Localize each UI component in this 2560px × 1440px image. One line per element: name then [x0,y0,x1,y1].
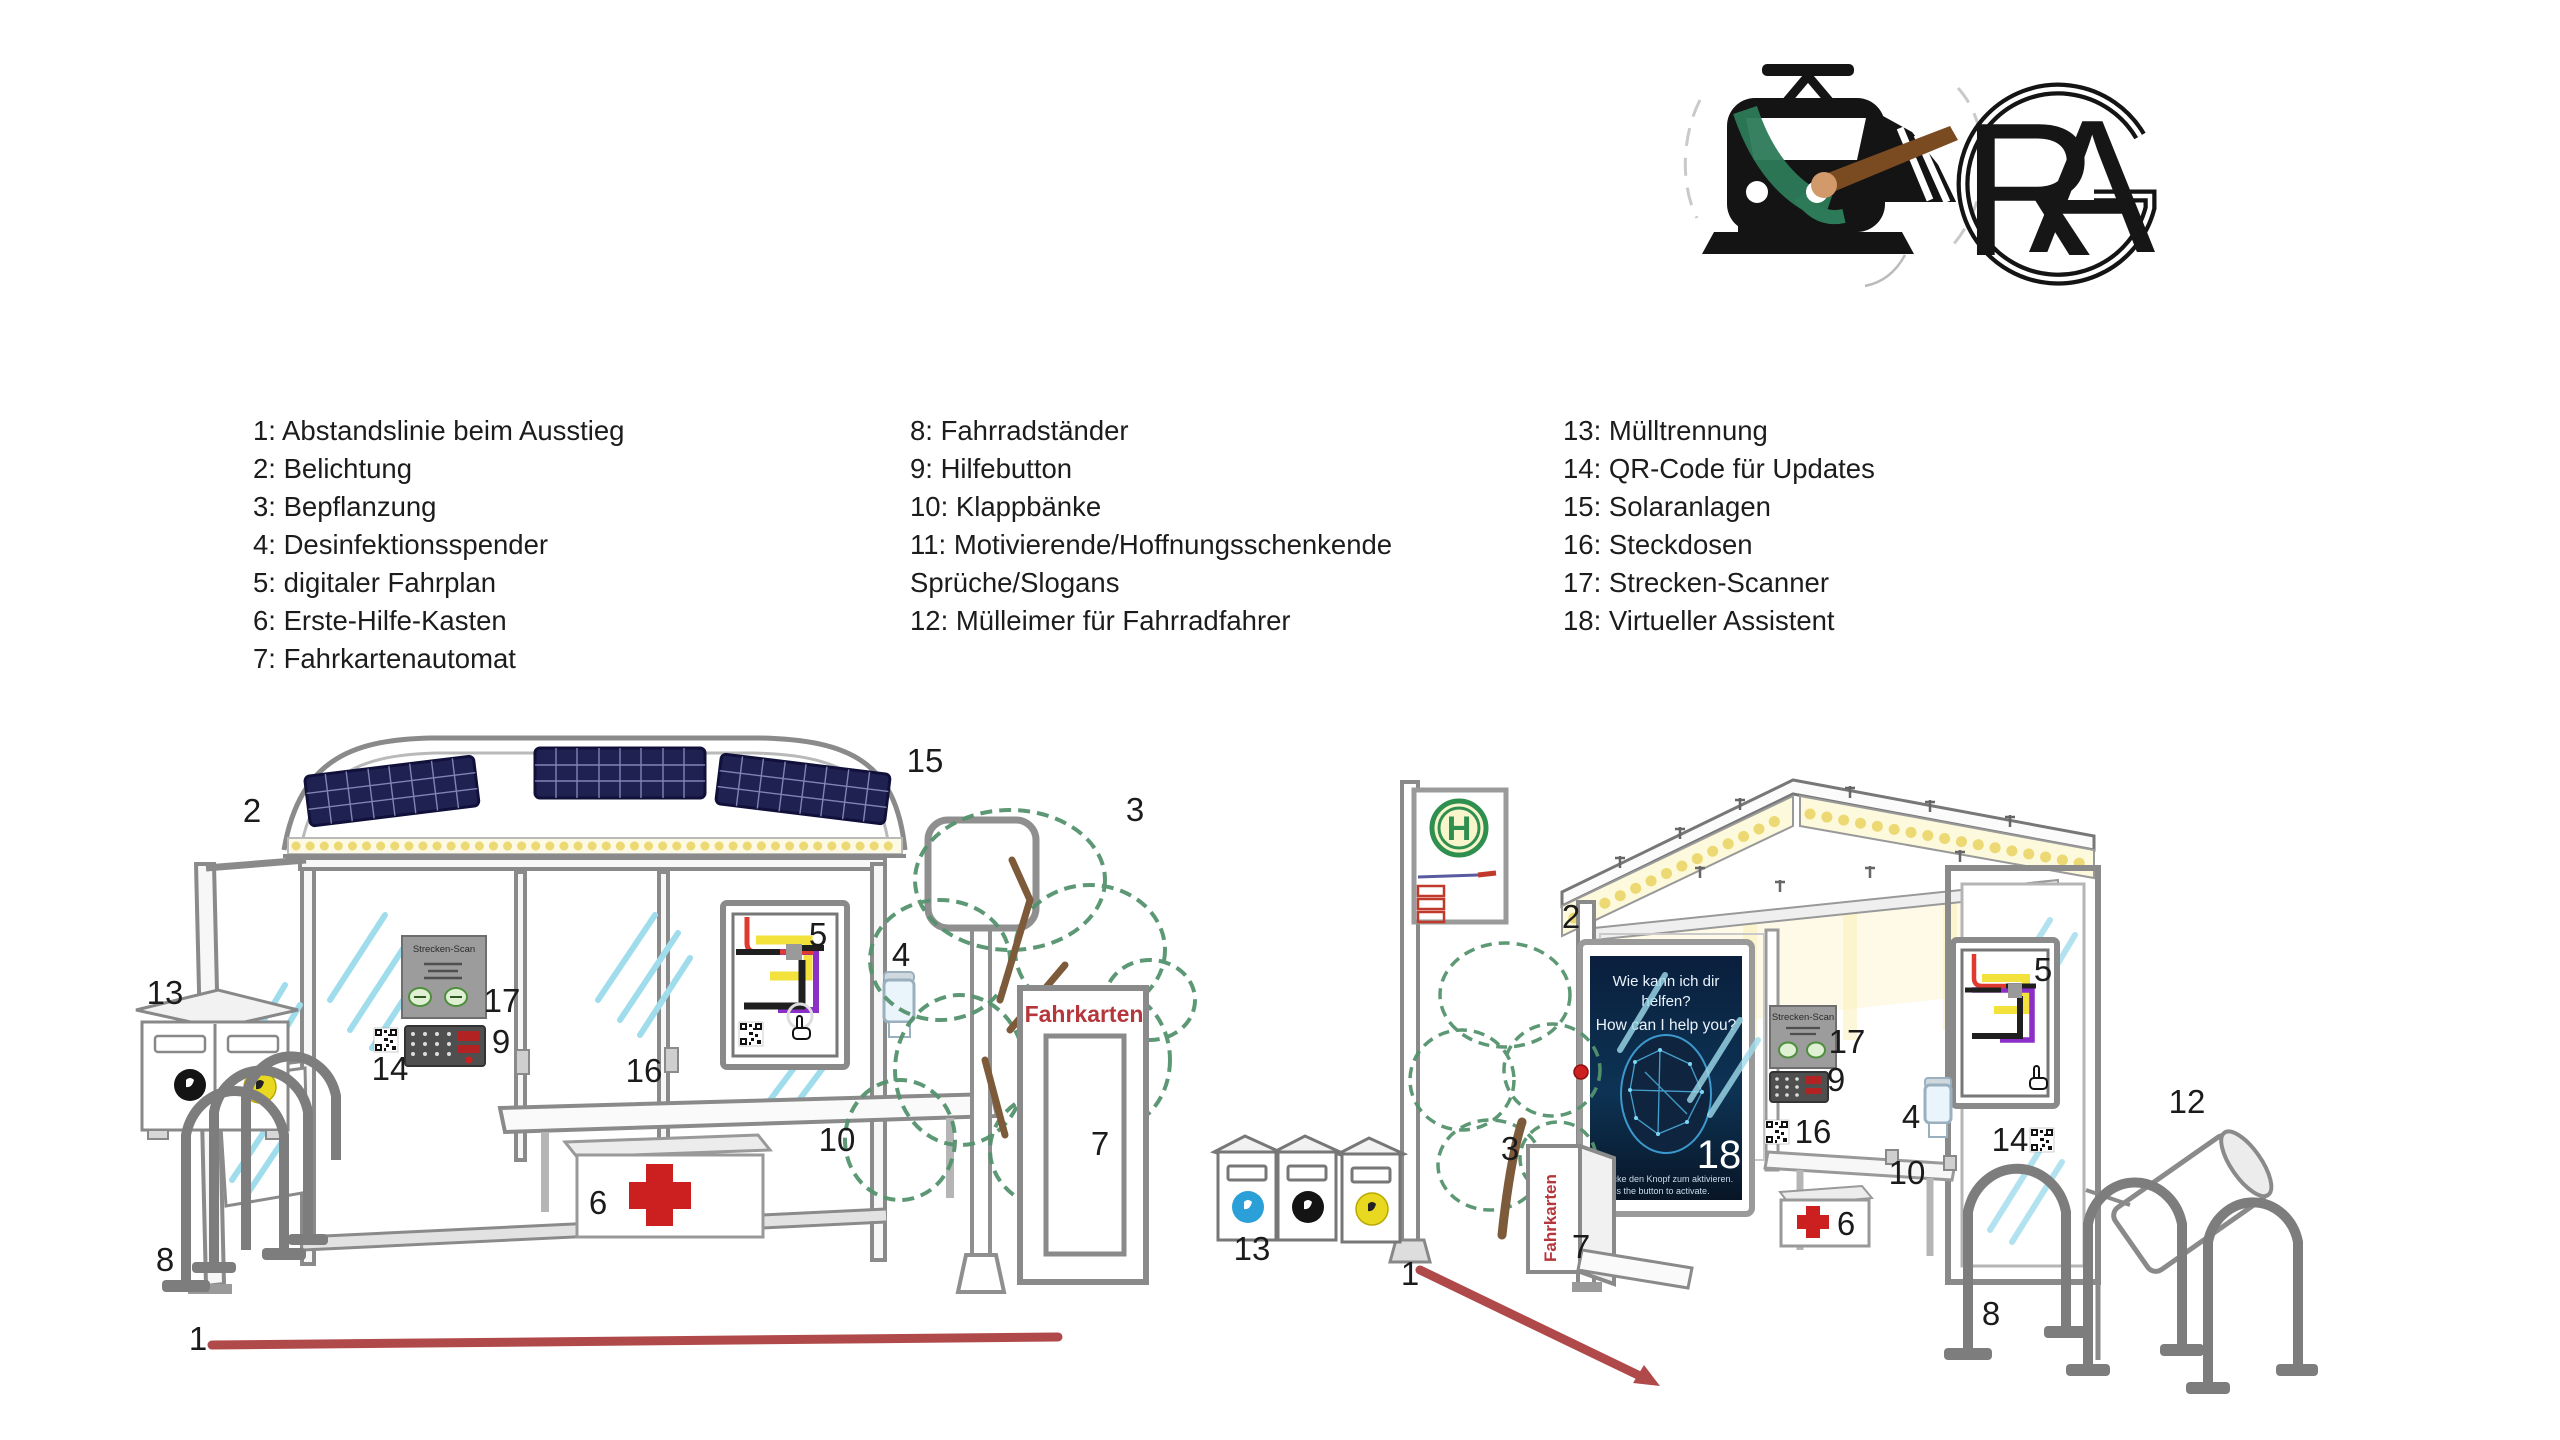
callout-14: 14 [372,1050,409,1087]
disinfectant-dispenser[interactable] [1925,1078,1951,1137]
callout-1: 1 [1401,1255,1419,1292]
power-outlet[interactable] [665,1048,678,1072]
paintbrush-tip [1811,172,1837,198]
power-outlet[interactable] [516,1050,529,1074]
distance-line [212,1337,1058,1345]
left-shelter: Strecken-Scan [136,738,1195,1357]
callout-8: 8 [156,1241,174,1278]
help-button-keypad[interactable] [1770,1072,1828,1102]
callout-6: 6 [589,1184,607,1221]
qr-code-icon [1765,1120,1789,1144]
callout-16: 16 [1795,1113,1832,1150]
callout-17: 17 [484,982,521,1019]
callout-13: 13 [147,974,184,1011]
train-logo [1685,64,1983,286]
callout-14: 14 [1992,1121,2029,1158]
train-base [1702,232,1914,254]
callout-4: 4 [1902,1098,1920,1135]
callout-12: 12 [2169,1083,2206,1120]
rag-logo: R A [1961,81,2155,296]
callout-15: 15 [907,742,944,779]
fahrkarten-label: Fahrkarten [1541,1174,1560,1262]
callout-17: 17 [1829,1023,1866,1060]
ticket-machine[interactable]: Fahrkarten [1020,988,1146,1282]
power-outlet[interactable] [1944,1156,1956,1170]
callout-5: 5 [809,916,827,953]
scanner-title: Strecken-Scan [1772,1012,1834,1023]
train-headlight [1746,181,1768,203]
bus-stop-diagram: R A [0,0,2560,1440]
waste-bins [1214,1136,1404,1242]
callout-18: 18 [1697,1133,1742,1177]
callout-3: 3 [1126,791,1144,828]
callout-13: 13 [1234,1230,1271,1267]
callout-7: 7 [1091,1125,1109,1162]
stand-feet [1944,1326,2318,1394]
assistant-text-en: How can I help you? [1596,1017,1737,1034]
callout-10: 10 [1889,1154,1926,1191]
callout-9: 9 [492,1023,510,1060]
qr-code-updates [2030,1128,2054,1152]
callout-8: 8 [1982,1295,2000,1332]
solar-panel [535,748,705,798]
bus-stop-sign: H [1390,782,1506,1262]
qr-code-updates [374,1028,398,1052]
strecken-scanner-panel: Strecken-Scan [402,936,486,1018]
callout-1: 1 [189,1320,207,1357]
fahrkarten-label: Fahrkarten [1025,1001,1144,1027]
callout-10: 10 [819,1121,856,1158]
callout-7: 7 [1572,1228,1590,1265]
rag-letter-a: A [2029,81,2156,293]
help-button-keypad[interactable] [405,1026,485,1066]
digital-timetable [723,903,847,1067]
assistant-footer-de: Drücke den Knopf zum aktivieren. [1598,1174,1733,1184]
qr-code-icon [739,1022,763,1046]
callout-9: 9 [1827,1061,1845,1098]
assistant-activate-button[interactable] [1574,1065,1588,1079]
right-shelter: H [1214,780,2318,1394]
h-sign-letter: H [1447,810,1472,848]
callout-4: 4 [892,936,910,973]
scanner-title: Strecken-Scan [413,944,475,955]
strecken-scanner-panel: Strecken-Scan [1770,1006,1836,1068]
disinfectant-dispenser[interactable] [884,972,914,1037]
callout-16: 16 [626,1052,663,1089]
distance-arrow-line [1420,1270,1638,1375]
diagram-page: 1: Abstandslinie beim Ausstieg 2: Belich… [0,0,2560,1440]
first-aid-box [1780,1186,1872,1246]
callout-5: 5 [2034,951,2052,988]
callout-2: 2 [1562,898,1580,935]
help-button[interactable] [466,1057,473,1064]
callout-3: 3 [1501,1130,1519,1167]
callout-6: 6 [1837,1205,1855,1242]
callout-2: 2 [243,792,261,829]
